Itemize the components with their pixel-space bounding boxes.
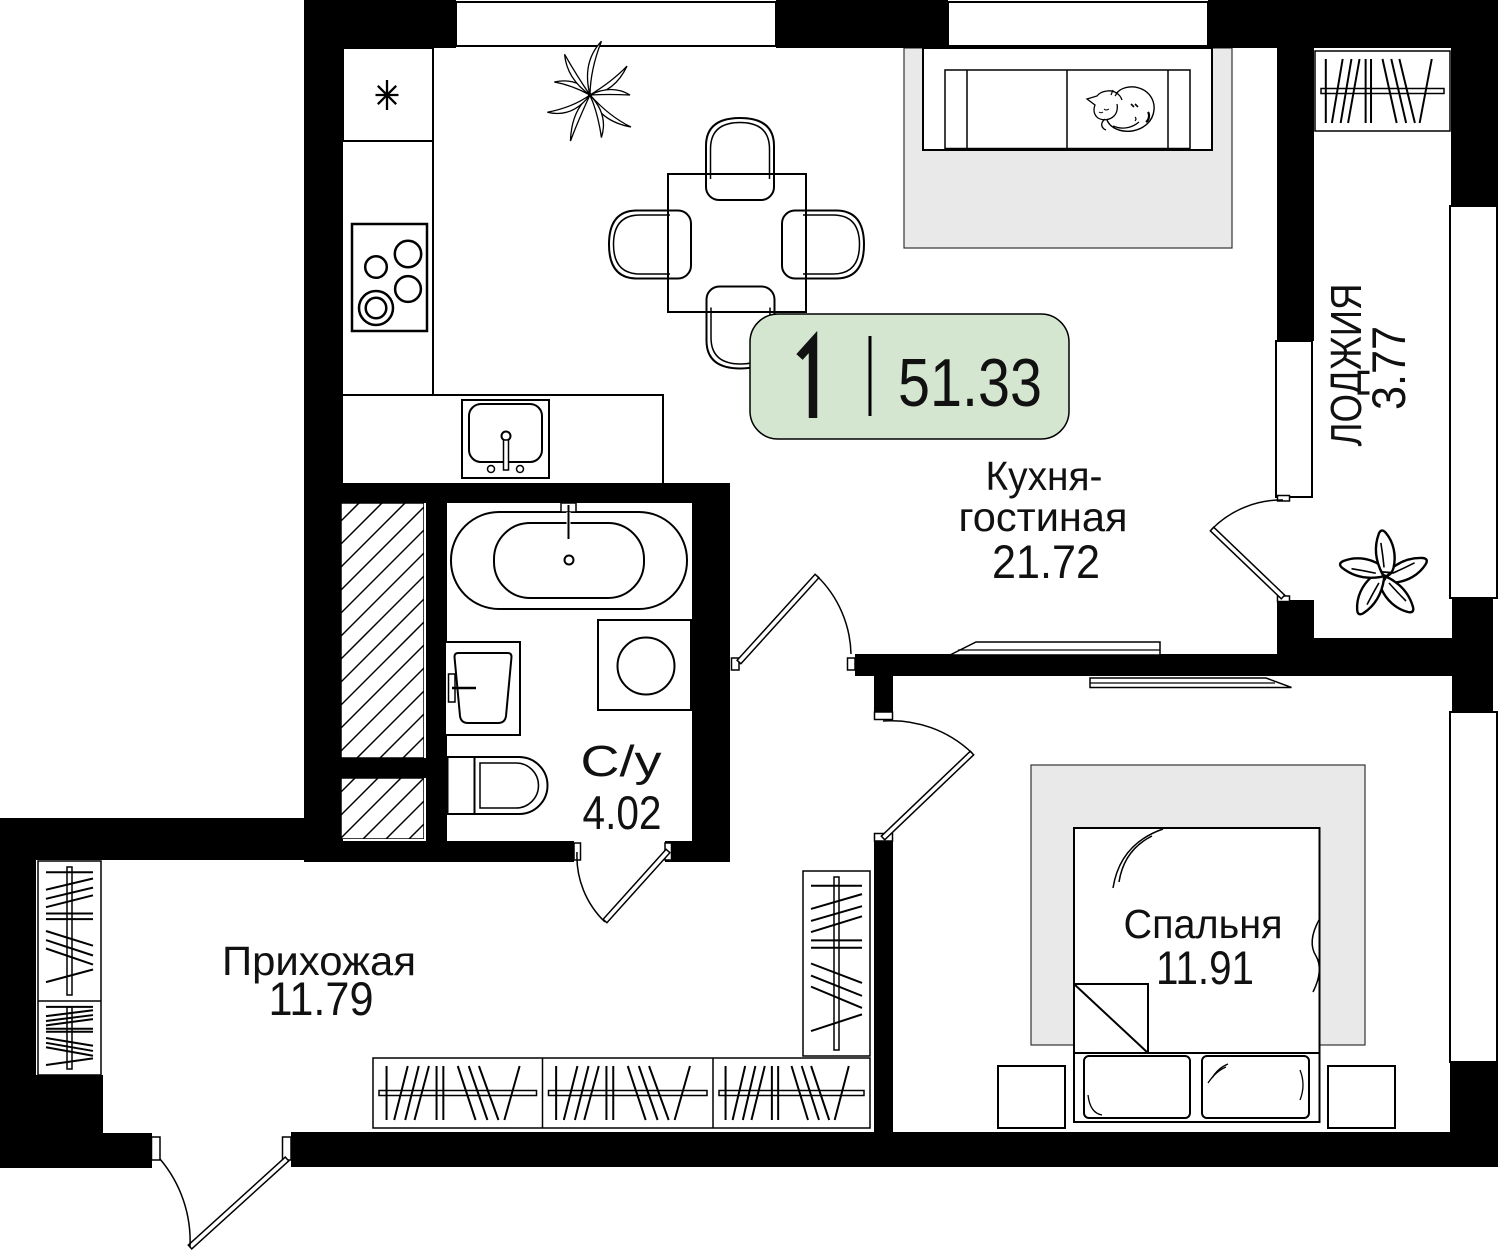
svg-text:11.79: 11.79 (269, 972, 374, 1025)
svg-text:4.02: 4.02 (583, 786, 662, 839)
svg-text:11.91: 11.91 (1156, 941, 1254, 994)
svg-text:51.33: 51.33 (898, 345, 1042, 421)
svg-text:гостиная: гостиная (959, 494, 1128, 540)
svg-text:3.77: 3.77 (1362, 326, 1415, 410)
svg-text:21.72: 21.72 (992, 535, 1100, 588)
svg-text:Кухня-: Кухня- (986, 453, 1103, 499)
svg-text:С/у: С/у (581, 737, 662, 786)
